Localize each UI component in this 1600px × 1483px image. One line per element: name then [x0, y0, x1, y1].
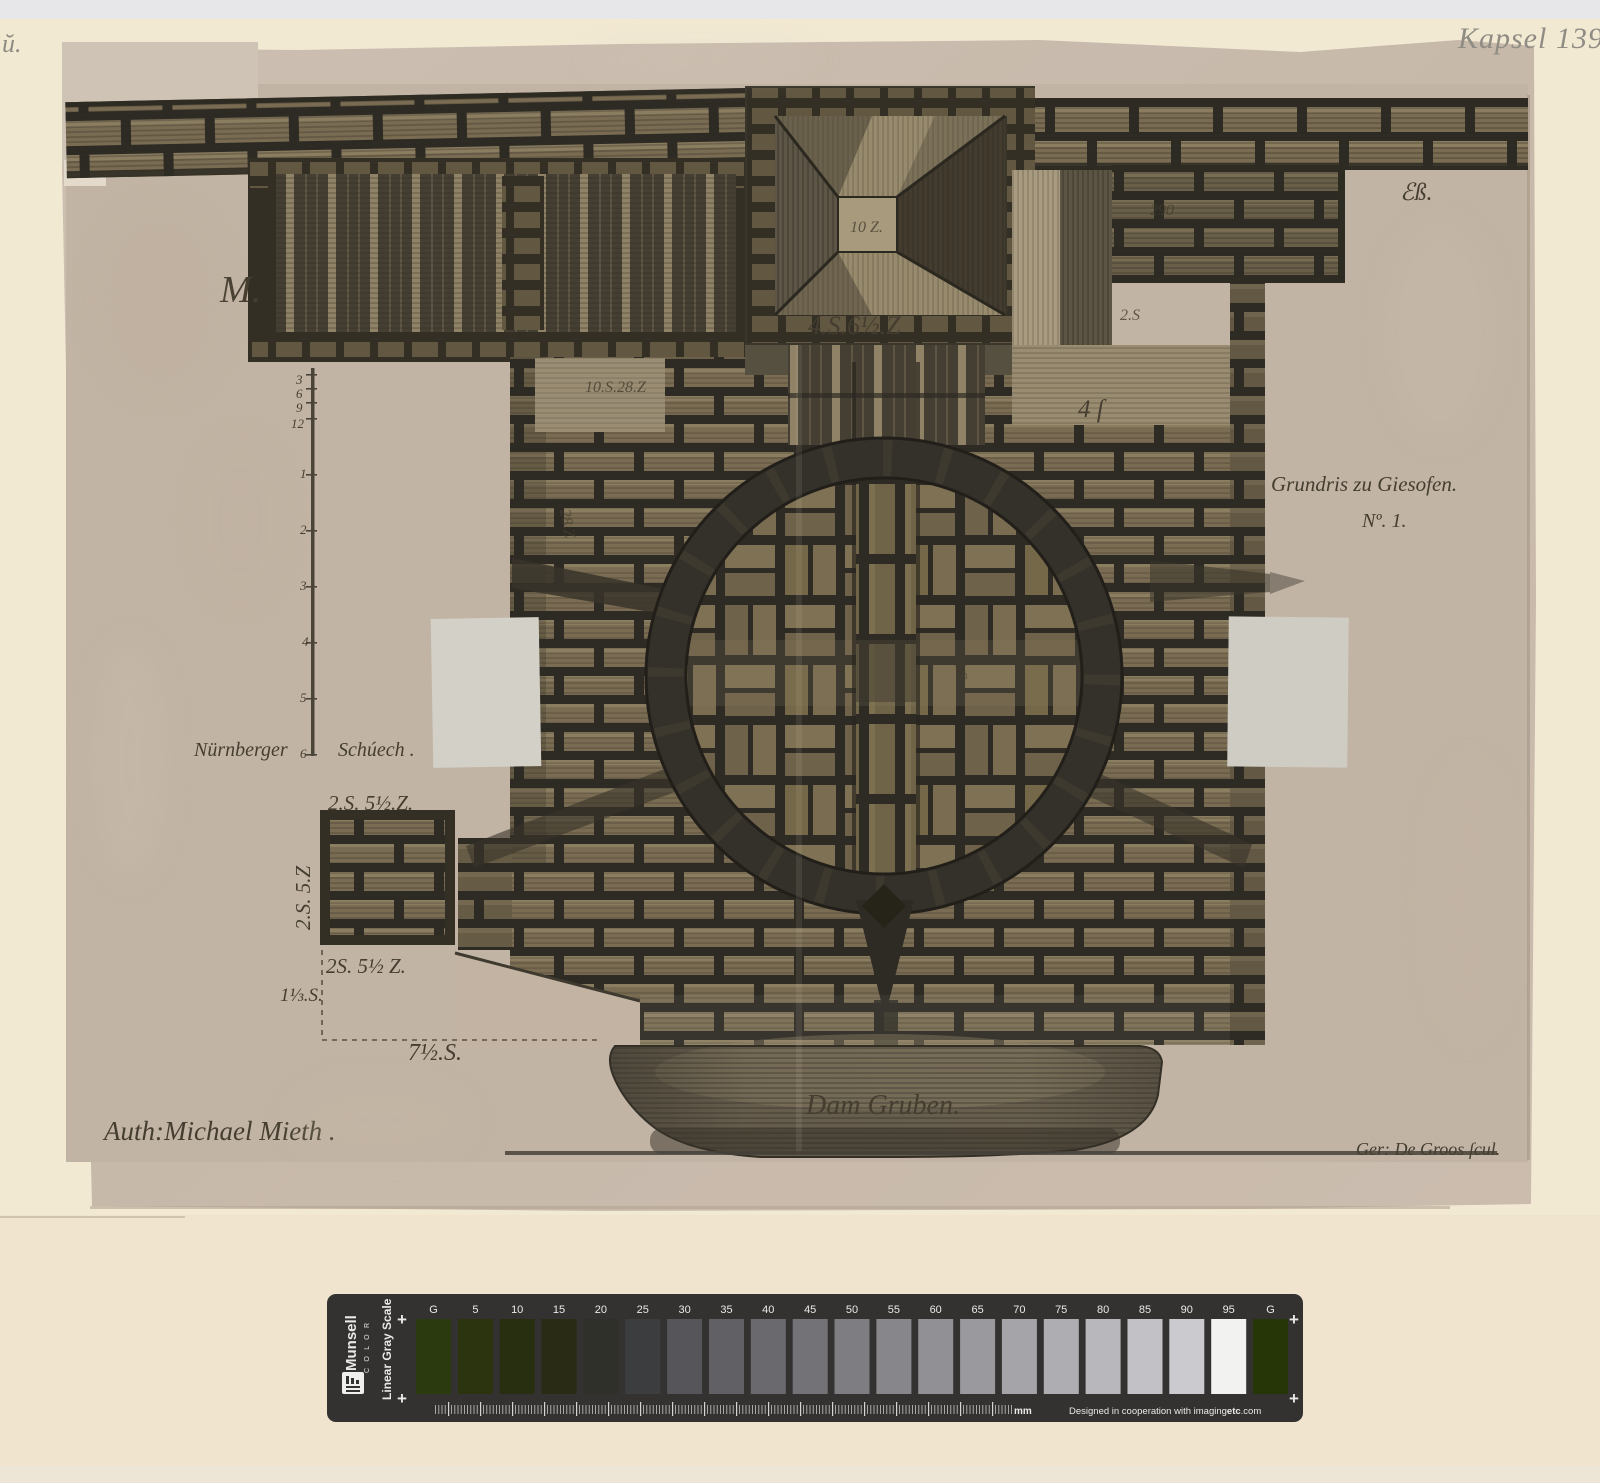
svg-text:7½.S.: 7½.S. [408, 1040, 462, 1066]
svg-text:25: 25 [637, 1304, 649, 1316]
svg-text:2.S. 5.Z: 2.S. 5.Z [291, 866, 315, 931]
svg-text:85: 85 [1139, 1304, 1151, 1316]
svg-text:C O L O R: C O L O R [364, 1321, 371, 1373]
svg-text:+: + [397, 1310, 407, 1329]
svg-text:10: 10 [511, 1304, 523, 1316]
svg-text:55: 55 [888, 1304, 900, 1316]
svg-text:1⅓.S.: 1⅓.S. [280, 985, 323, 1006]
svg-text:9: 9 [296, 400, 303, 415]
svg-text:6: 6 [296, 386, 303, 401]
svg-text:Schúech .: Schúech . [338, 739, 415, 761]
svg-text:6: 6 [300, 746, 307, 761]
svg-text:Munsell: Munsell [343, 1315, 360, 1371]
svg-text:60: 60 [930, 1304, 942, 1316]
svg-text:3: 3 [299, 578, 307, 593]
svg-text:3: 3 [295, 372, 303, 387]
svg-text:2S. 5½ Z.: 2S. 5½ Z. [326, 954, 406, 978]
svg-text:45: 45 [804, 1304, 816, 1316]
svg-text:4 ſ: 4 ſ [1078, 396, 1107, 423]
svg-text:10 Z.: 10 Z. [850, 219, 883, 236]
svg-text:M.: M. [219, 269, 261, 311]
svg-text:90: 90 [1181, 1304, 1193, 1316]
svg-text:4.S.6½.Z: 4.S.6½.Z [808, 311, 901, 340]
svg-text:20: 20 [595, 1304, 607, 1316]
svg-text:70: 70 [1013, 1304, 1025, 1316]
svg-text:5: 5 [300, 690, 307, 705]
svg-text:Kapsel 139: Kapsel 139 [1457, 22, 1600, 55]
svg-text:G: G [1266, 1304, 1275, 1316]
svg-text:Grundris zu Giesofen.: Grundris zu Giesofen. [1271, 472, 1457, 496]
svg-text:80: 80 [1097, 1304, 1109, 1316]
svg-text:12: 12 [291, 416, 305, 431]
svg-text:95: 95 [1223, 1304, 1235, 1316]
svg-text:Dam Gruben.: Dam Gruben. [805, 1090, 960, 1121]
svg-text:50: 50 [846, 1304, 858, 1316]
svg-text:2.S: 2.S [1120, 307, 1140, 324]
svg-text:30: 30 [678, 1304, 690, 1316]
svg-text:+: + [397, 1389, 407, 1408]
svg-text:290: 290 [1150, 202, 1174, 219]
svg-text:Ger: De Groos ſcul.: Ger: De Groos ſcul. [1356, 1139, 1500, 1159]
svg-text:+: + [1289, 1310, 1299, 1329]
svg-text:40: 40 [762, 1304, 774, 1316]
svg-text:15: 15 [553, 1304, 565, 1316]
svg-text:2: 2 [300, 522, 307, 537]
svg-text:Nürnberger: Nürnberger [193, 739, 288, 761]
svg-text:1: 1 [300, 466, 307, 481]
svg-text:mm: mm [1014, 1406, 1032, 1417]
svg-text:35: 35 [720, 1304, 732, 1316]
svg-text:5: 5 [472, 1304, 478, 1316]
svg-text:G: G [429, 1304, 438, 1316]
svg-text:2.S: 2.S [951, 659, 970, 680]
svg-text:ŭ.: ŭ. [2, 29, 22, 58]
svg-text:10.S.28.Z: 10.S.28.Z [585, 379, 647, 396]
svg-text:75: 75 [1055, 1304, 1067, 1316]
svg-text:4: 4 [302, 634, 309, 649]
svg-text:Designed in cooperation with i: Designed in cooperation with imagingetc.… [1069, 1406, 1261, 1417]
svg-text:ℰß.: ℰß. [1400, 180, 1433, 206]
svg-text:Linear Gray Scale: Linear Gray Scale [380, 1298, 394, 1400]
svg-text:Nº. 1.: Nº. 1. [1361, 510, 1407, 532]
svg-text:65: 65 [971, 1304, 983, 1316]
svg-text:+: + [1289, 1389, 1299, 1408]
svg-text:2.S. 5½.Z.: 2.S. 5½.Z. [328, 791, 413, 815]
